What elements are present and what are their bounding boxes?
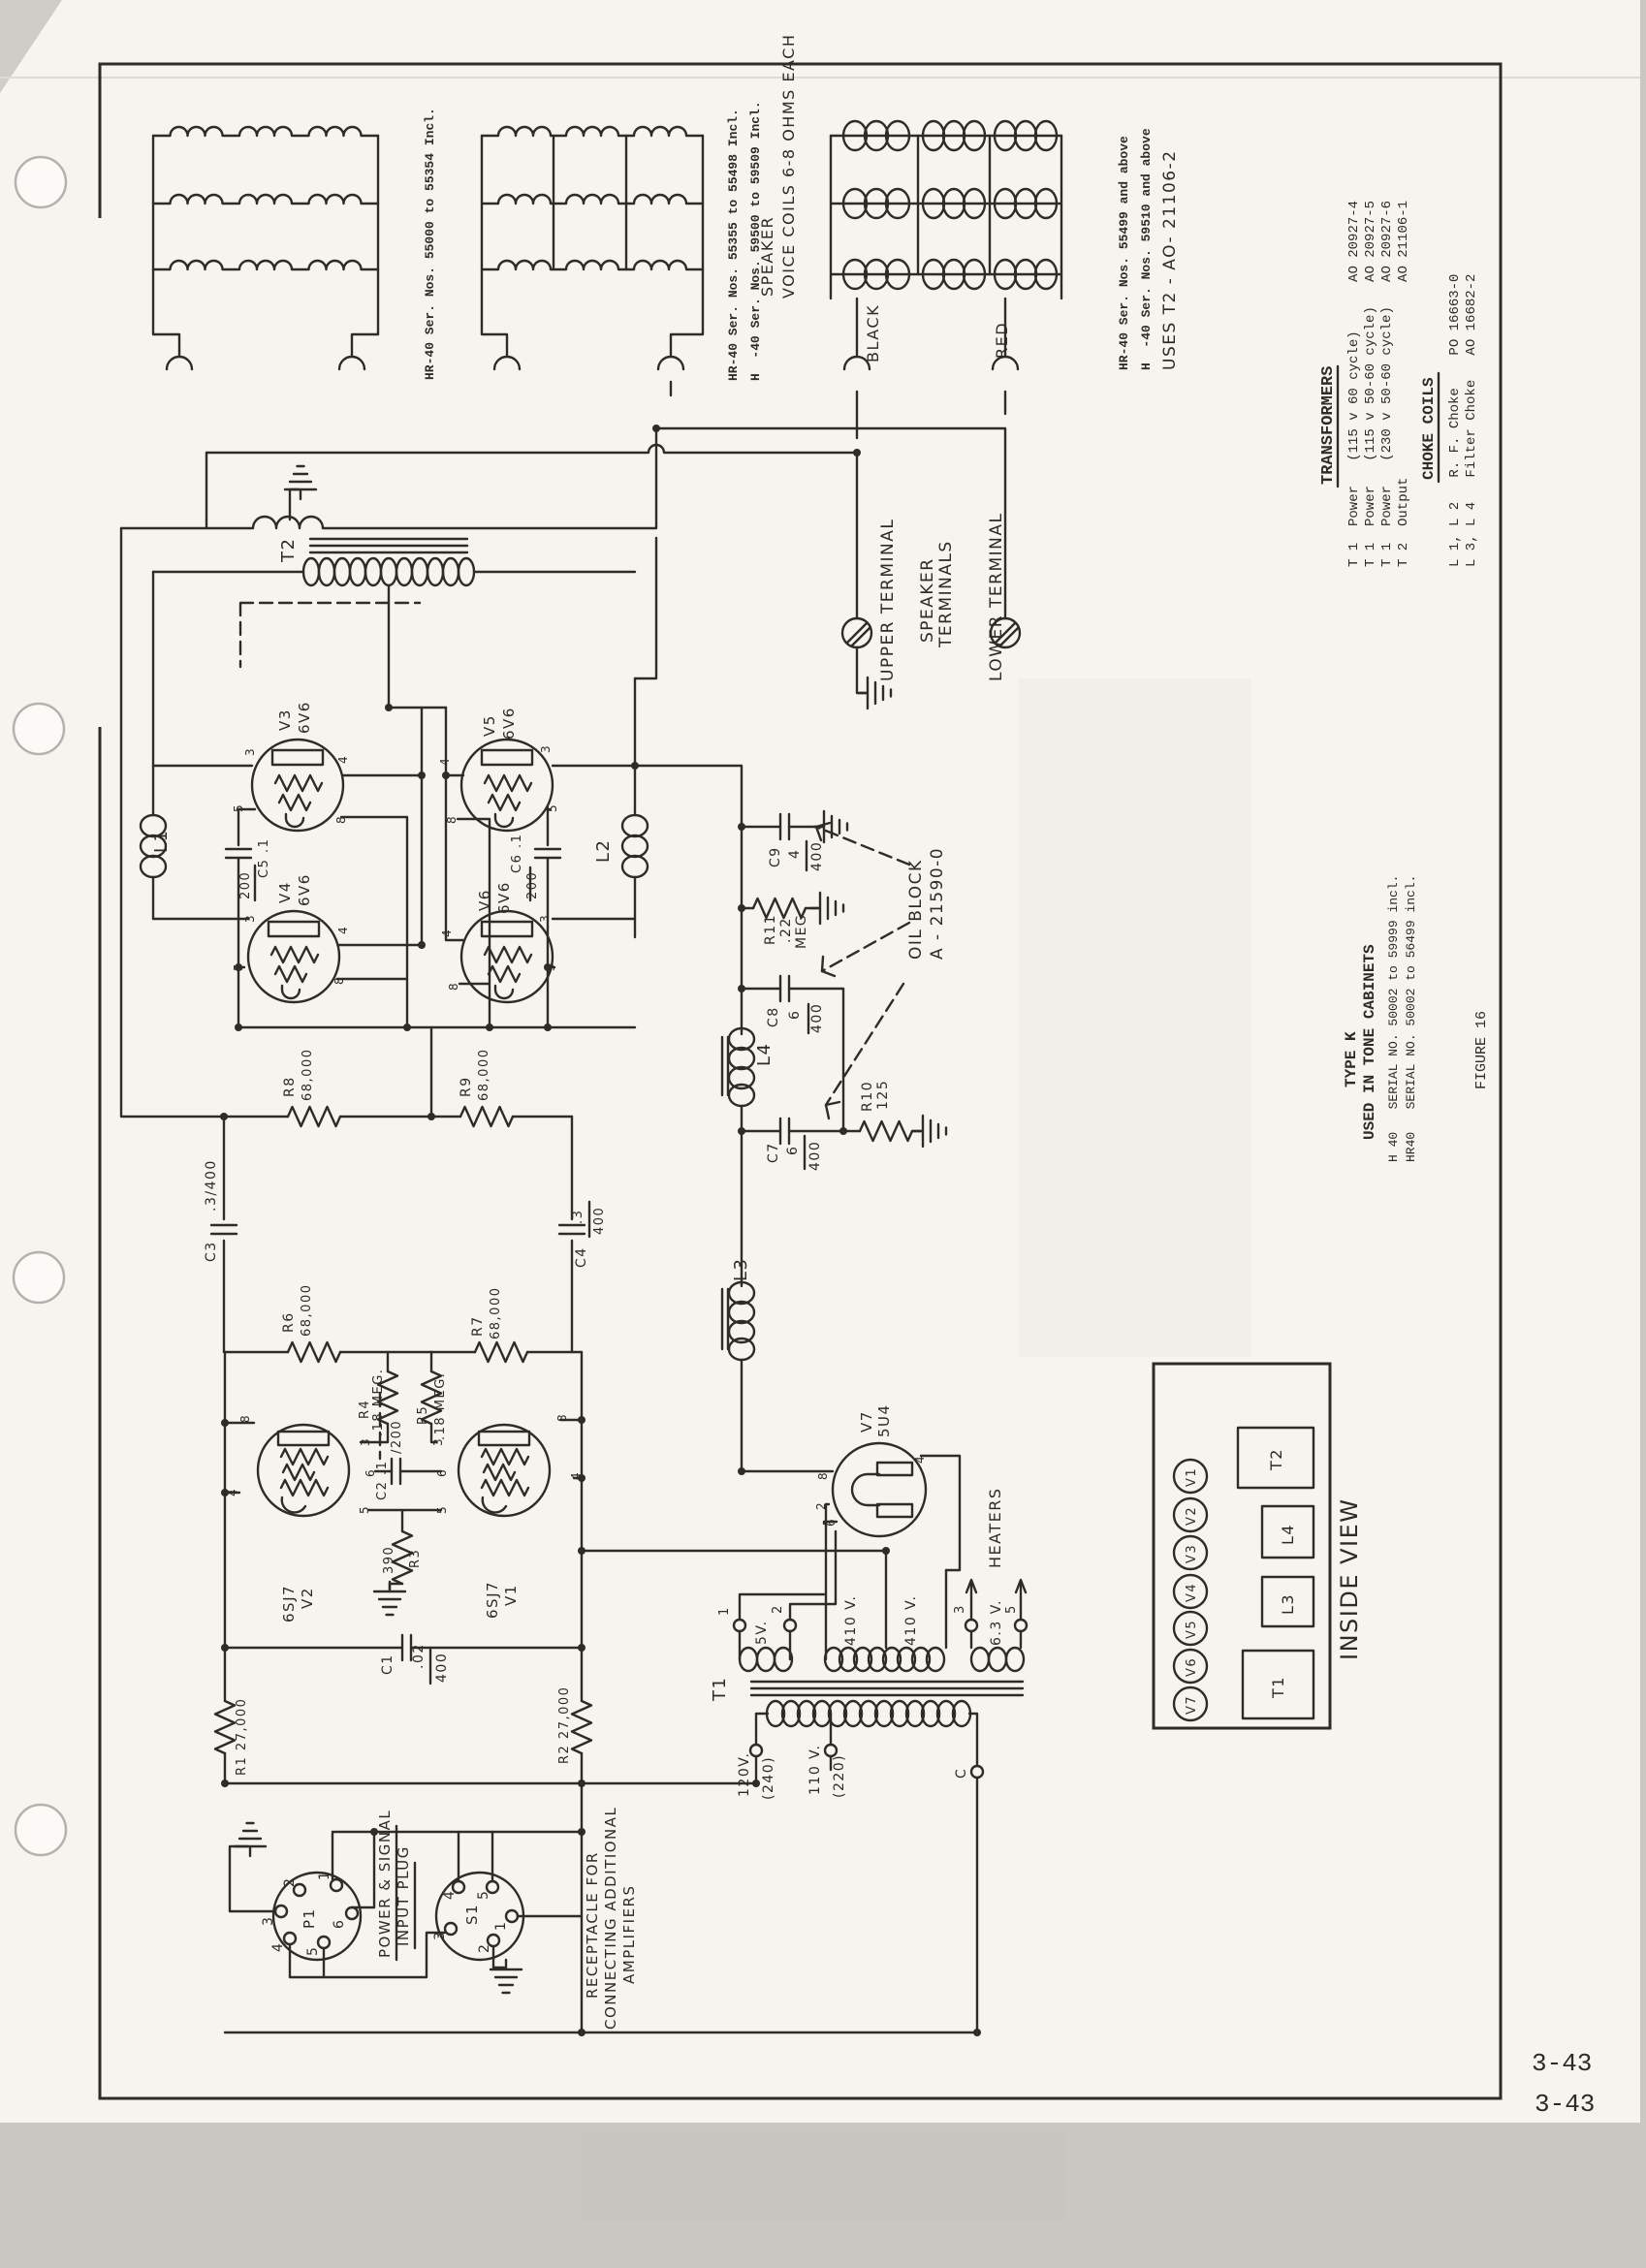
c9-label: C9 <box>768 846 783 867</box>
iv-block-t2: T2 <box>1267 1448 1285 1471</box>
choke-coils-title: CHOKE COILS <box>1420 377 1438 480</box>
iv-tube-v1: V1 <box>1185 1467 1199 1487</box>
r4-label: R4 <box>358 1400 372 1419</box>
bleed-through <box>1018 678 1250 1357</box>
svg-text:8: 8 <box>555 1413 569 1422</box>
t1-term-5: 5 <box>1004 1604 1019 1614</box>
svg-text:5: 5 <box>232 803 245 812</box>
c2-label: C2 .1 <box>375 1461 390 1500</box>
transformers-row: T 1 Power (115 v 50-60 cycle) AO 20927-5 <box>1363 201 1378 567</box>
l2-label: L2 <box>593 839 614 863</box>
svg-text:5: 5 <box>546 803 559 812</box>
svg-text:6: 6 <box>435 1468 449 1477</box>
t1-label: T1 <box>710 1677 730 1702</box>
r1-label: R1 27,000 <box>235 1698 249 1776</box>
r11-num: .22 <box>778 917 794 943</box>
r4-value: .18 MEG. <box>371 1369 386 1436</box>
choke-coils-row: L 3, L 4 Filter Choke AO 16682-2 <box>1464 274 1479 567</box>
heaters-label: HEATERS <box>986 1488 1004 1569</box>
r10-value: 125 <box>875 1080 891 1110</box>
input-plug-label-1: POWER & SIGNAL <box>376 1810 394 1958</box>
svg-text:3: 3 <box>539 744 553 753</box>
svg-text:5: 5 <box>435 1505 449 1514</box>
c6-value: 200 <box>525 871 540 899</box>
p1-pin-4: 4 <box>270 1942 286 1952</box>
svg-text:4: 4 <box>440 929 454 937</box>
c4-label: C4 <box>574 1246 589 1268</box>
type-block-line3: H 40 SERIAL NO. 50002 to 59999 incl. <box>1386 875 1401 1162</box>
c5-value: 200 <box>238 871 253 899</box>
t1-term-1: 1 <box>717 1606 732 1616</box>
svg-text:6: 6 <box>824 1518 838 1527</box>
r7-value: 68,000 <box>489 1287 503 1340</box>
transformers-row: T 2 Output AO 21106-1 <box>1396 201 1411 567</box>
svg-text:4: 4 <box>913 1455 927 1464</box>
s1-pin-5: 5 <box>476 1890 491 1900</box>
iv-tube-v7: V7 <box>1185 1695 1199 1715</box>
iv-tube-v6: V6 <box>1185 1657 1199 1677</box>
v2-type: 6SJ7 <box>280 1585 298 1622</box>
speaker-terminals-label-1: SPEAKER <box>918 557 937 643</box>
t1-410v-label-2: 410 V. <box>903 1595 919 1646</box>
t1-5v-label: 5V. <box>754 1620 770 1645</box>
r3-label: R3 <box>408 1549 423 1568</box>
receptacle-label-3: AMPLIFIERS <box>620 1884 638 1984</box>
c8-label: C8 <box>766 1006 781 1027</box>
t1-110v-label: 110 V. <box>807 1745 823 1795</box>
c8-den: 400 <box>809 1003 825 1033</box>
transformers-title: TRANSFORMERS <box>1319 366 1338 485</box>
p1-label: P1 <box>301 1907 318 1929</box>
s1-pin-3: 3 <box>432 1931 448 1940</box>
v4-label: V4 <box>276 881 294 903</box>
group3-caption-2: H -40 Ser. Nos. 59510 and above <box>1139 128 1154 370</box>
speaker-label-1: SPEAKER <box>758 216 776 297</box>
choke-coils-row: L 1, L 2 R. F. Choke PO 16663-0 <box>1447 274 1463 567</box>
type-block-line2: USED IN TONE CABINETS <box>1361 944 1378 1140</box>
v5-label: V5 <box>481 714 498 737</box>
iv-tube-v4: V4 <box>1185 1583 1199 1602</box>
v1-label: V1 <box>502 1584 520 1606</box>
r11-label: R11 <box>763 914 778 945</box>
c7-den: 400 <box>807 1141 823 1171</box>
svg-text:3: 3 <box>359 1437 372 1446</box>
figure-label: FIGURE 16 <box>1473 1011 1490 1089</box>
r3-value: 390 <box>382 1546 396 1574</box>
iv-tube-v3: V3 <box>1185 1544 1199 1563</box>
v4-type: 6V6 <box>296 873 313 906</box>
scanned-schematic-page: HR-40 Ser. Nos. 55000 to 55354 Incl. HR-… <box>0 0 1646 2268</box>
svg-text:5: 5 <box>358 1505 371 1514</box>
c7-label: C7 <box>766 1142 781 1163</box>
p1-pin-3: 3 <box>261 1916 276 1926</box>
c9-num: 4 <box>787 849 803 859</box>
svg-text:8: 8 <box>447 982 460 991</box>
r9-value: 68,000 <box>477 1049 491 1102</box>
page-number: 3-43 <box>1532 2049 1592 2078</box>
svg-text:3: 3 <box>431 1437 445 1446</box>
c4-den: 400 <box>592 1207 607 1235</box>
c5-label: C5 .1 <box>257 838 271 878</box>
v6-type: 6V6 <box>495 881 513 914</box>
page-number-bleed: 3-43 <box>1535 2090 1595 2119</box>
p1-pin-1: 1 <box>317 1871 332 1880</box>
l3-label: L3 <box>731 1258 751 1281</box>
svg-text:3: 3 <box>538 914 552 923</box>
bleed-through <box>582 2132 1066 2220</box>
v6-label: V6 <box>476 889 493 911</box>
type-block-line1: TYPE K <box>1343 1031 1360 1087</box>
r8-label: R8 <box>282 1076 298 1097</box>
r10-label: R10 <box>860 1081 875 1112</box>
c7-num: 6 <box>785 1146 801 1155</box>
svg-text:8: 8 <box>816 1471 830 1480</box>
s1-pin-1: 1 <box>493 1921 509 1931</box>
p1-pin-5: 5 <box>305 1946 321 1956</box>
p1-pin-6: 6 <box>332 1919 347 1929</box>
red-terminal-label: RED <box>993 322 1011 359</box>
c4-num: .3 <box>571 1210 586 1224</box>
group2-caption-1: HR-40 Ser. Nos. 55355 to 55498 Incl. <box>726 109 741 381</box>
svg-text:4: 4 <box>336 755 350 764</box>
receptacle-label-2: CONNECTING ADDITIONAL <box>602 1807 619 2030</box>
iv-block-t1: T1 <box>1269 1676 1287 1699</box>
c6-label: C6 .1 <box>510 834 524 873</box>
t1-term-2: 2 <box>771 1604 785 1614</box>
svg-text:8: 8 <box>334 815 348 824</box>
type-block-line4: HR40 SERIAL NO. 50002 to 56499 incl. <box>1404 875 1418 1162</box>
transformers-row: T 1 Power (115 v 60 cycle) AO 20927-4 <box>1346 201 1362 567</box>
r5-label: R5 <box>416 1405 430 1425</box>
t1-410v-label-1: 410 V. <box>843 1595 859 1646</box>
c3-label: C3 <box>204 1241 219 1262</box>
s1-label: S1 <box>463 1904 481 1925</box>
v7-type: 5U4 <box>875 1403 893 1437</box>
oil-block-label-1: OIL BLOCK <box>906 859 926 960</box>
group3-caption-3: USES T2 - AO- 21106-2 <box>1160 149 1180 370</box>
svg-text:8: 8 <box>445 815 459 824</box>
upper-terminal-label: UPPER TERMINAL <box>878 519 898 681</box>
l1-label: L1 <box>151 830 172 853</box>
inside-view-title: INSIDE VIEW <box>1336 1497 1363 1660</box>
oil-block-label-2: A - 21590-0 <box>928 847 947 960</box>
speaker-terminals-label-2: TERMINALS <box>936 540 956 648</box>
v7-label: V7 <box>858 1410 875 1433</box>
t1-63v-label: 6.3 V. <box>989 1599 1004 1646</box>
lower-terminal-label: LOWER TERMINAL <box>987 513 1006 681</box>
r9-label: R9 <box>459 1076 474 1097</box>
s1-pin-4: 4 <box>442 1890 458 1900</box>
c1-label: C1 <box>380 1654 396 1675</box>
v3-label: V3 <box>276 709 294 731</box>
svg-text:3: 3 <box>243 747 257 756</box>
v5-type: 6V6 <box>500 707 518 740</box>
r5-value: .18 MEG. <box>433 1372 448 1440</box>
speaker-label-2: VOICE COILS 6-8 OHMS EACH <box>779 34 798 299</box>
svg-text:6: 6 <box>364 1468 377 1477</box>
svg-text:2: 2 <box>814 1501 828 1510</box>
group1-caption: HR-40 Ser. Nos. 55000 to 55354 Incl. <box>423 108 437 380</box>
r8-value: 68,000 <box>301 1049 315 1102</box>
t1-c-label: C <box>954 1768 969 1779</box>
r11-den: MEG. <box>794 908 809 949</box>
transformers-row: T 1 Power (230 v 50-60 cycle) AO 20927-6 <box>1379 201 1395 567</box>
r6-value: 68,000 <box>300 1284 314 1338</box>
schematic-scan: HR-40 Ser. Nos. 55000 to 55354 Incl. HR-… <box>0 0 1646 2268</box>
t2-label: T2 <box>278 538 299 563</box>
t1-220-label: (220) <box>832 1754 847 1798</box>
group3-caption-1: HR-40 Ser. Nos. 55499 and above <box>1117 136 1131 370</box>
c1-den: 400 <box>434 1653 450 1683</box>
iv-tube-v2: V2 <box>1185 1506 1199 1526</box>
iv-block-l3: L3 <box>1279 1593 1297 1615</box>
svg-text:3: 3 <box>243 914 257 923</box>
svg-text:8: 8 <box>238 1414 252 1423</box>
svg-text:4: 4 <box>336 926 350 934</box>
r7-label: R7 <box>470 1315 486 1337</box>
svg-text:8: 8 <box>332 976 346 985</box>
t1-term-3: 3 <box>953 1604 967 1614</box>
r2-label: R2 27,000 <box>557 1686 572 1764</box>
p1-pin-2: 2 <box>282 1877 298 1887</box>
iv-tube-v5: V5 <box>1185 1620 1199 1639</box>
t1-240-label: (240) <box>761 1756 776 1800</box>
s1-pin-2: 2 <box>477 1943 492 1953</box>
r6-label: R6 <box>281 1311 297 1333</box>
v1-type: 6SJ7 <box>484 1581 501 1619</box>
black-terminal-label: BLACK <box>864 304 882 362</box>
c3-value: .3/400 <box>204 1159 219 1212</box>
c8-num: 6 <box>787 1010 803 1020</box>
receptacle-label-1: RECEPTACLE FOR <box>584 1851 601 1999</box>
svg-text:4: 4 <box>438 757 452 766</box>
t1-120v-label: 120V. <box>737 1752 752 1797</box>
c2-den: /200 <box>390 1420 404 1454</box>
v2-label: V2 <box>299 1587 316 1609</box>
c9-den: 400 <box>809 841 825 871</box>
iv-block-l4: L4 <box>1279 1524 1297 1545</box>
l4-label: L4 <box>754 1043 775 1066</box>
c1-num: .02 <box>411 1643 427 1669</box>
v3-type: 6V6 <box>296 701 313 734</box>
